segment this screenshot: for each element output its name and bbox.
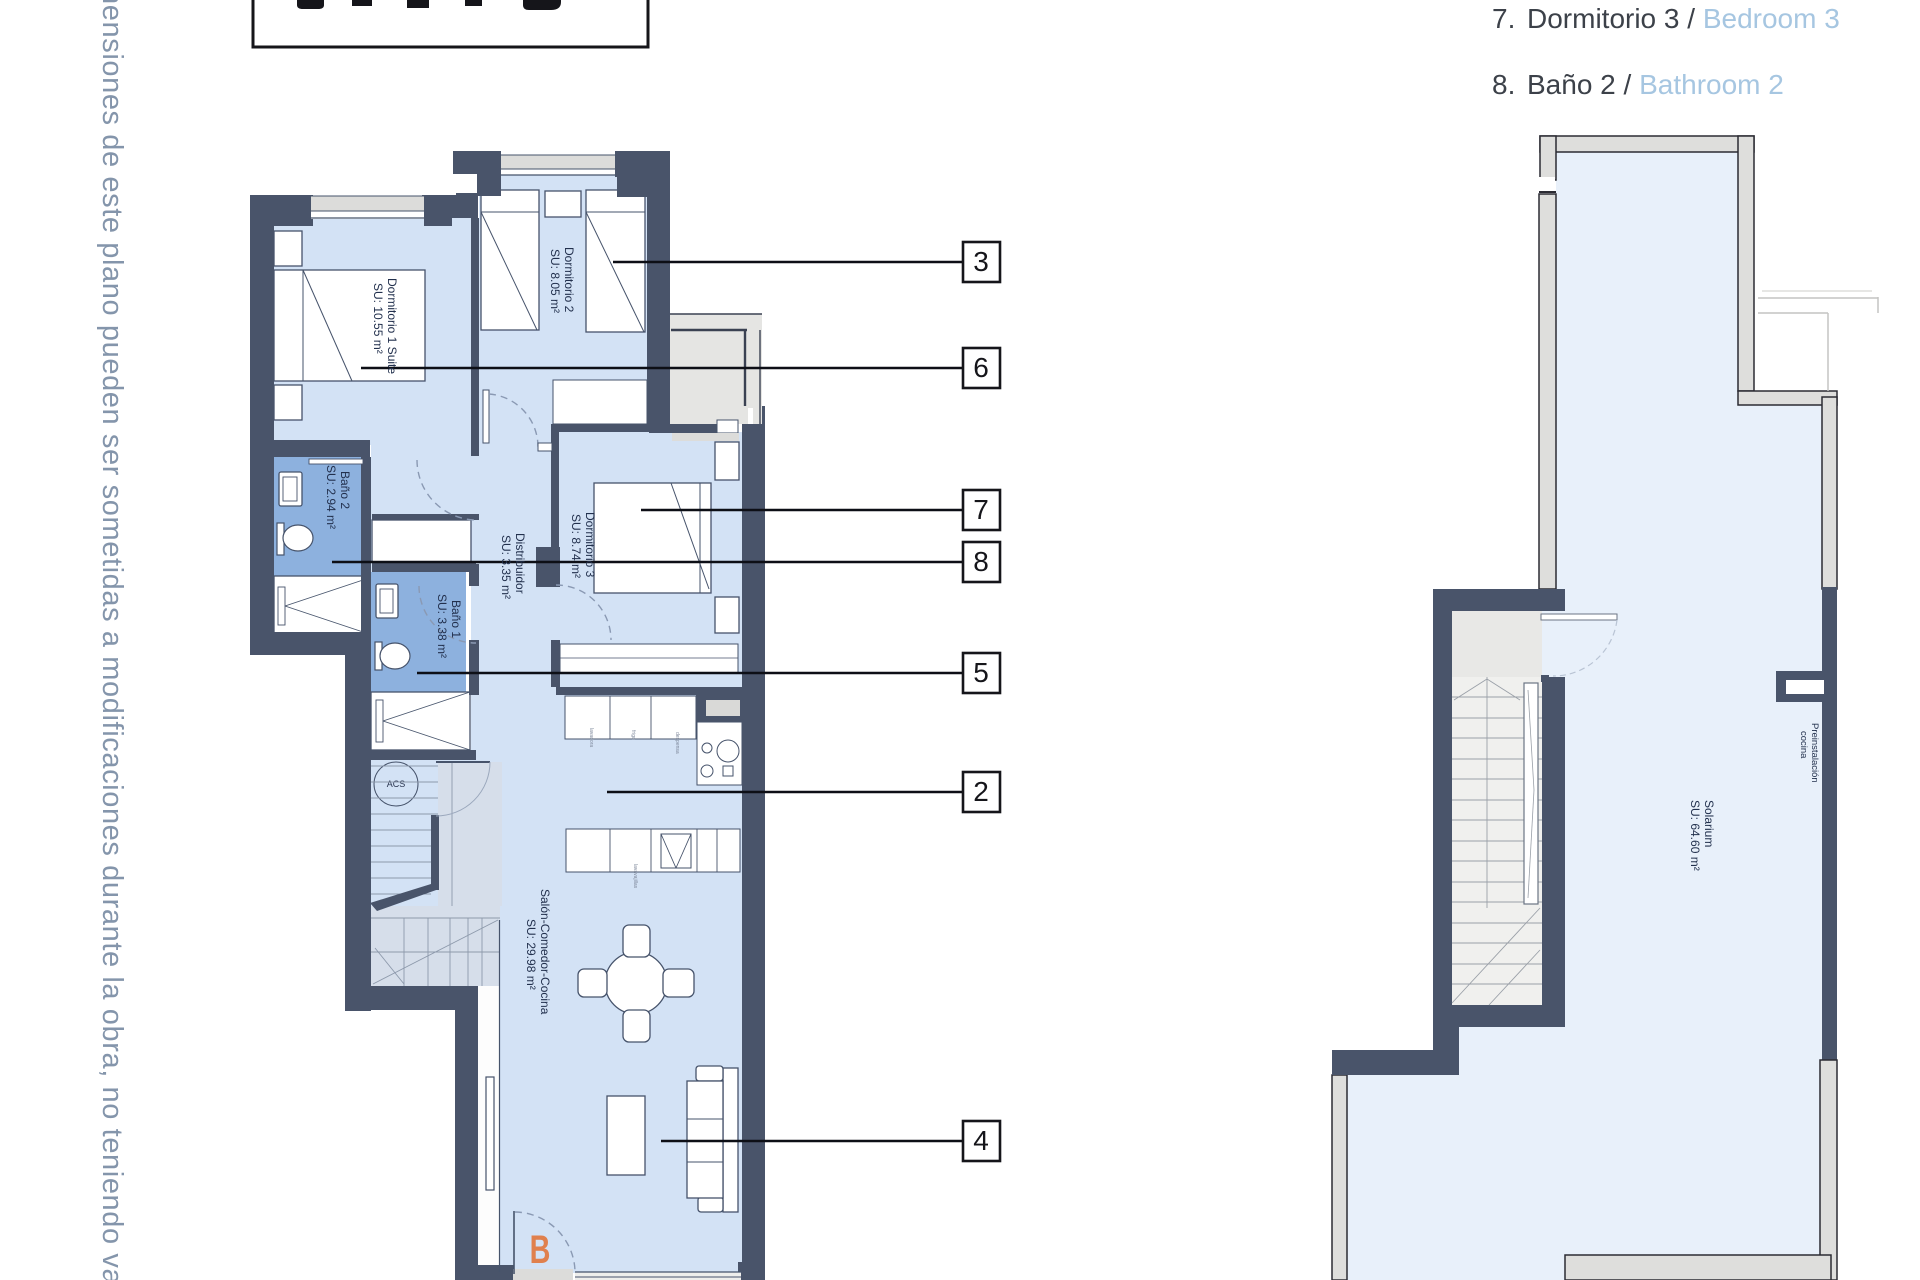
svg-text:7.: 7. xyxy=(1492,3,1515,34)
svg-text:mensiones de este plano pueden: mensiones de este plano pueden ser somet… xyxy=(96,0,128,1280)
svg-text:SU: 3.35 m²: SU: 3.35 m² xyxy=(499,535,513,599)
svg-text:Baño 2 / Bathroom 2: Baño 2 / Bathroom 2 xyxy=(1527,69,1784,100)
svg-text:SU: 8.74 m²: SU: 8.74 m² xyxy=(569,514,583,578)
svg-text:Preinstalación: Preinstalación xyxy=(1809,723,1820,783)
svg-text:2: 2 xyxy=(973,776,989,807)
svg-text:SU: 8.05 m²: SU: 8.05 m² xyxy=(548,249,562,313)
svg-text:cocina: cocina xyxy=(1798,731,1809,759)
svg-text:8: 8 xyxy=(973,546,989,577)
svg-text:Dormitorio 3: Dormitorio 3 xyxy=(583,512,597,578)
svg-text:lavavajillas: lavavajillas xyxy=(632,864,638,889)
svg-text:Baño 2: Baño 2 xyxy=(338,471,352,509)
svg-text:Dormitorio 3 / Bedroom 3: Dormitorio 3 / Bedroom 3 xyxy=(1527,3,1840,34)
svg-text:Dormitorio 2: Dormitorio 2 xyxy=(562,247,576,313)
svg-text:6: 6 xyxy=(973,352,989,383)
svg-text:Dormitorio 1 Suite: Dormitorio 1 Suite xyxy=(385,278,399,374)
svg-text:8.: 8. xyxy=(1492,69,1515,100)
svg-text:3: 3 xyxy=(973,246,989,277)
svg-text:SU: 2.94 m²: SU: 2.94 m² xyxy=(324,465,338,529)
svg-text:frigo: frigo xyxy=(630,730,636,740)
svg-text:B: B xyxy=(530,1227,551,1272)
svg-text:4: 4 xyxy=(973,1125,989,1156)
svg-text:lavadora: lavadora xyxy=(588,728,594,747)
svg-text:ACS: ACS xyxy=(387,779,406,789)
svg-text:Salón-Comedor-Cocina: Salón-Comedor-Cocina xyxy=(538,889,552,1015)
svg-text:despensa: despensa xyxy=(674,732,680,754)
svg-text:5: 5 xyxy=(973,657,989,688)
svg-text:7: 7 xyxy=(973,494,989,525)
svg-text:SU: 29.98 m²: SU: 29.98 m² xyxy=(524,919,538,990)
svg-text:Solarium: Solarium xyxy=(1702,800,1716,847)
svg-text:Baño 1: Baño 1 xyxy=(449,600,463,638)
svg-text:SU: 10.55 m²: SU: 10.55 m² xyxy=(371,283,385,354)
svg-text:SU: 64.60 m²: SU: 64.60 m² xyxy=(1688,800,1702,871)
svg-text:Distribuidor: Distribuidor xyxy=(513,533,527,594)
svg-text:SU: 3.38 m²: SU: 3.38 m² xyxy=(435,594,449,658)
